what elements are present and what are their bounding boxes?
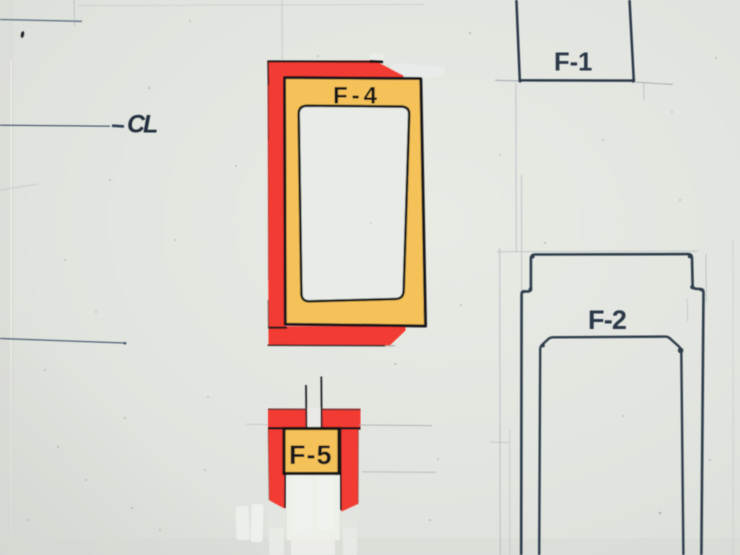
svg-text:F-1: F-1 xyxy=(554,49,592,77)
svg-text:CL: CL xyxy=(127,111,157,139)
svg-text:F-4: F-4 xyxy=(333,83,381,110)
svg-text:F-5: F-5 xyxy=(289,440,333,470)
svg-text:F-2: F-2 xyxy=(588,305,626,335)
